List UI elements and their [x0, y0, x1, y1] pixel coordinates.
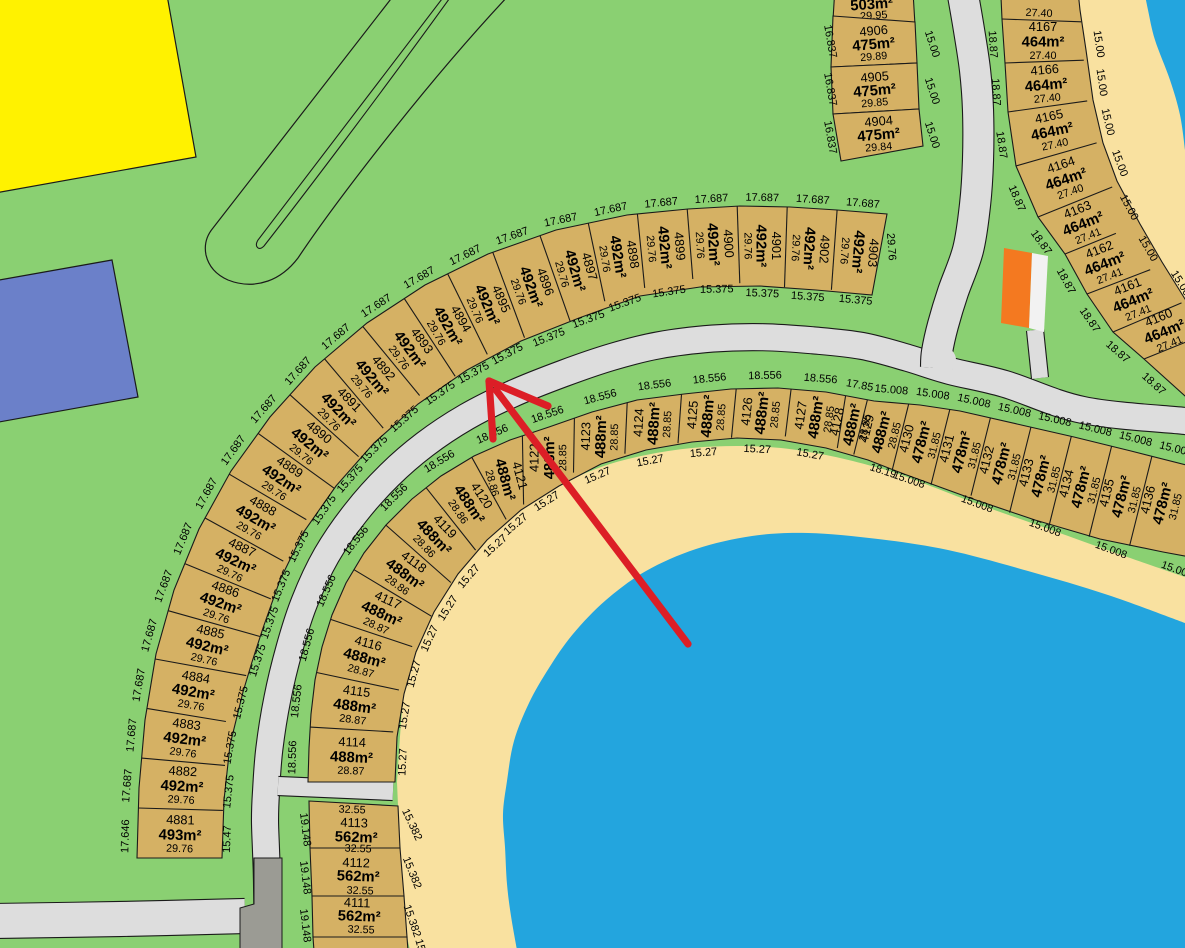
svg-text:15.27: 15.27 [396, 748, 409, 776]
svg-text:29.76: 29.76 [741, 232, 753, 259]
svg-text:15.375: 15.375 [745, 287, 779, 300]
svg-text:4125: 4125 [684, 400, 701, 430]
svg-text:29.89: 29.89 [860, 50, 888, 64]
svg-text:28.85: 28.85 [714, 403, 728, 431]
svg-text:27.40: 27.40 [1025, 7, 1053, 20]
svg-text:492m²: 492m² [753, 225, 769, 268]
svg-text:562m²: 562m² [336, 868, 379, 885]
svg-text:29.76: 29.76 [884, 233, 898, 261]
svg-text:464m²: 464m² [1022, 35, 1065, 51]
svg-text:18.556: 18.556 [748, 370, 782, 383]
svg-text:28.85: 28.85 [557, 444, 569, 471]
svg-text:29.76: 29.76 [644, 235, 658, 263]
svg-text:27.40: 27.40 [1033, 92, 1061, 106]
svg-text:493m²: 493m² [158, 827, 201, 844]
svg-text:15.27: 15.27 [743, 443, 771, 456]
svg-text:15.375: 15.375 [791, 290, 825, 304]
svg-text:29.76: 29.76 [167, 793, 195, 807]
svg-text:4167: 4167 [1029, 19, 1057, 34]
svg-text:15.27: 15.27 [689, 446, 717, 460]
svg-text:15.375: 15.375 [700, 283, 734, 296]
svg-text:4901: 4901 [769, 232, 784, 260]
svg-text:27.40: 27.40 [1029, 50, 1056, 62]
svg-text:4124: 4124 [630, 408, 647, 437]
svg-text:4114: 4114 [338, 734, 366, 750]
svg-text:18.87: 18.87 [989, 78, 1003, 106]
svg-text:4902: 4902 [816, 235, 832, 264]
svg-text:4881: 4881 [166, 812, 195, 828]
svg-text:28.85: 28.85 [608, 424, 621, 451]
svg-text:32.55: 32.55 [344, 843, 371, 856]
svg-text:29.76: 29.76 [837, 237, 851, 265]
svg-text:4113: 4113 [340, 815, 368, 831]
svg-text:17.646: 17.646 [119, 819, 132, 853]
svg-text:29.76: 29.76 [789, 234, 802, 262]
svg-text:17.687: 17.687 [745, 192, 779, 205]
svg-text:4123: 4123 [578, 422, 594, 451]
svg-text:29.84: 29.84 [865, 140, 893, 154]
svg-text:4903: 4903 [865, 238, 882, 268]
svg-text:4166: 4166 [1030, 61, 1060, 78]
svg-text:4899: 4899 [671, 231, 688, 261]
svg-text:29.76: 29.76 [166, 843, 193, 856]
svg-text:28.85: 28.85 [661, 411, 674, 439]
svg-text:488m²: 488m² [593, 415, 610, 458]
svg-text:17.687: 17.687 [694, 192, 728, 206]
svg-text:15.47: 15.47 [221, 825, 234, 853]
svg-text:18.87: 18.87 [986, 30, 1000, 58]
svg-text:4900: 4900 [721, 229, 738, 258]
svg-text:18.556: 18.556 [286, 740, 299, 774]
svg-text:28.87: 28.87 [337, 765, 365, 778]
svg-text:4882: 4882 [168, 763, 197, 780]
svg-text:29.85: 29.85 [861, 96, 889, 110]
svg-text:29.76: 29.76 [693, 231, 706, 259]
svg-text:17.687: 17.687 [796, 193, 830, 207]
svg-text:32.55: 32.55 [347, 924, 374, 937]
